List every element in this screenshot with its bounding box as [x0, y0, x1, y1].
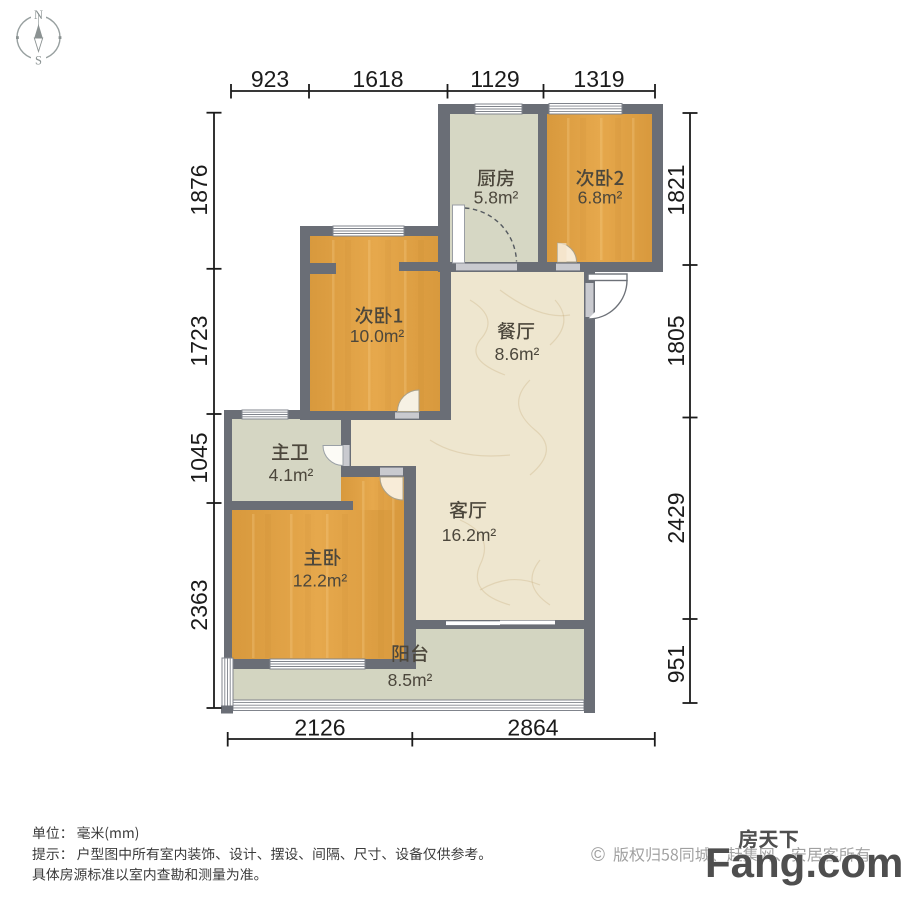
svg-text:1821: 1821 [663, 164, 689, 215]
svg-text:5.8m²: 5.8m² [474, 188, 519, 208]
svg-text:2126: 2126 [294, 715, 345, 741]
svg-text:951: 951 [663, 645, 689, 683]
svg-text:2363: 2363 [186, 579, 212, 630]
svg-text:16.2m²: 16.2m² [442, 525, 497, 545]
svg-text:1876: 1876 [186, 164, 212, 215]
svg-text:2429: 2429 [663, 492, 689, 543]
svg-text:1723: 1723 [186, 315, 212, 366]
svg-text:S: S [35, 54, 42, 68]
svg-text:2864: 2864 [507, 715, 558, 741]
svg-text:6.8m²: 6.8m² [578, 188, 623, 208]
svg-text:1319: 1319 [573, 66, 624, 92]
svg-text:1129: 1129 [470, 66, 519, 92]
svg-text:N: N [34, 8, 43, 22]
svg-text:1045: 1045 [186, 432, 212, 483]
svg-text:4.1m²: 4.1m² [269, 465, 314, 485]
svg-text:1805: 1805 [663, 315, 689, 366]
svg-text:1618: 1618 [352, 66, 403, 92]
svg-text:12.2m²: 12.2m² [293, 571, 348, 591]
svg-text:10.0m²: 10.0m² [350, 326, 405, 346]
svg-text:8.5m²: 8.5m² [388, 670, 433, 690]
svg-text:Fang.com: Fang.com [705, 839, 903, 886]
svg-text:923: 923 [251, 66, 289, 92]
svg-text:©: © [591, 845, 605, 866]
svg-text:8.6m²: 8.6m² [495, 344, 540, 364]
